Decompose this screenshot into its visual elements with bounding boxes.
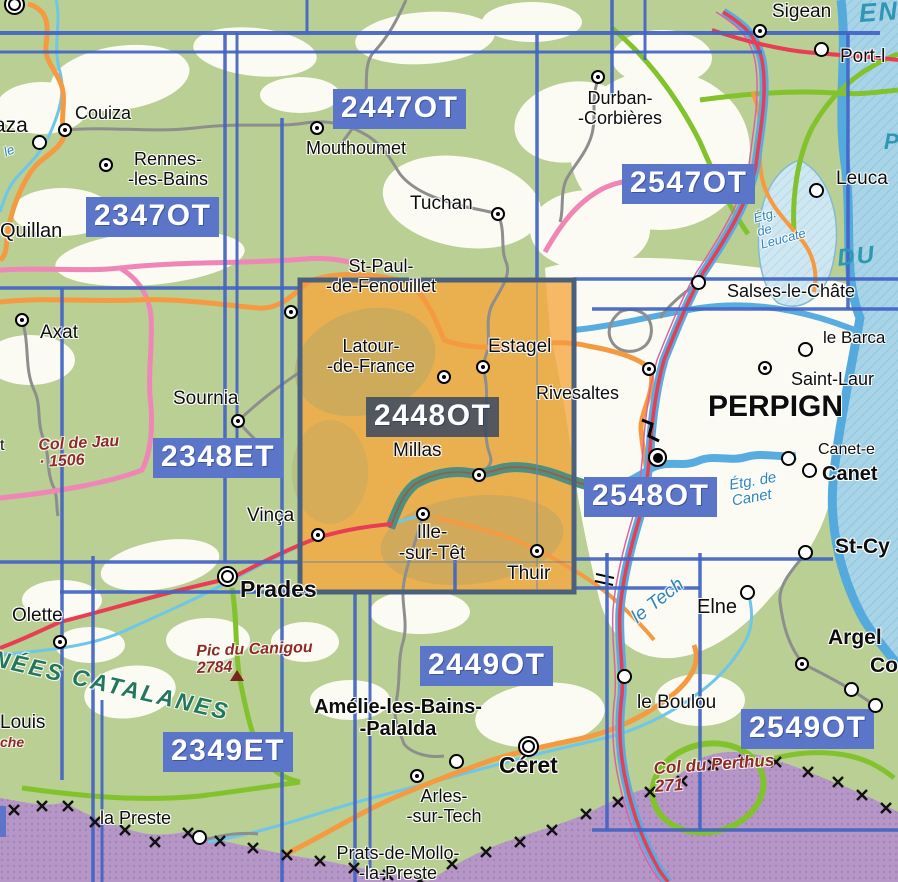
sheet-badge-T[interactable]: T <box>0 806 6 837</box>
town-label-line: St-Paul- <box>326 256 436 276</box>
town-label-line: St-Cy <box>835 535 890 559</box>
town-marker-icon <box>814 42 829 57</box>
town-label-line: Saint-Laur <box>791 369 874 389</box>
town-label-canet: Canet <box>822 463 878 485</box>
town-label-line: Louis <box>0 712 45 733</box>
sheet-badge-2348ET[interactable]: 2348ET <box>153 438 283 478</box>
town-marker-icon <box>491 207 505 221</box>
town-marker-icon <box>410 769 424 783</box>
town-label-line: la Preste <box>100 808 171 828</box>
town-label-canet-e: Canet-e <box>818 441 875 459</box>
town-label-line: Vinça <box>247 505 294 526</box>
town-label-axat: Axat <box>40 322 78 343</box>
town-label-line: Durban- <box>578 88 662 108</box>
town-label-sournia: Sournia <box>173 388 239 409</box>
map-canvas: 2347OT2447OT2547OT2348ET2448OT2548OT2449… <box>0 0 898 882</box>
town-label-thuir: Thuir <box>507 563 550 584</box>
town-label-line: -sur-Têt <box>399 543 466 564</box>
town-label-line: Arles- <box>406 786 481 806</box>
town-label-tuchan: Tuchan <box>410 193 473 214</box>
town-label-line: Salses-le-Châte <box>727 281 855 301</box>
town-marker-icon <box>518 736 539 757</box>
nature-label-col-de-jau: Col de Jau· 1506 <box>38 434 121 472</box>
town-label-line: PERPIGN <box>708 390 843 424</box>
town-label-line: Millas <box>393 440 442 461</box>
town-marker-icon <box>449 754 464 769</box>
town-label-line: aza <box>0 114 28 138</box>
town-label-line: Ille- <box>399 522 466 543</box>
sheet-badge-2549OT[interactable]: 2549OT <box>741 709 874 749</box>
town-label-line: Prats-de-Mollo- <box>336 843 459 863</box>
town-label-line: le Boulou <box>637 692 716 713</box>
town-marker-icon <box>217 566 238 587</box>
town-label-line: Latour- <box>327 336 415 356</box>
nature-label-line: DU <box>836 242 877 271</box>
town-label-line: Canet-e <box>818 441 875 459</box>
town-label-line: Prades <box>240 577 317 603</box>
town-marker-icon <box>192 830 207 845</box>
town-label-la-preste: la Preste <box>100 808 171 828</box>
town-marker-icon <box>753 24 767 38</box>
town-marker-icon <box>798 342 813 357</box>
town-label-saint-laur: Saint-Laur <box>791 369 874 389</box>
town-label-argel: Argel <box>828 626 882 650</box>
nature-label-line: le <box>2 143 16 159</box>
town-marker-icon <box>15 313 29 327</box>
town-label-estagel: Estagel <box>488 336 551 357</box>
town-label-salses-le-ch-te: Salses-le-Châte <box>727 281 855 301</box>
town-marker-icon <box>311 528 325 542</box>
town-label-le-barca: le Barca <box>823 328 885 347</box>
town-marker-icon <box>591 70 605 84</box>
nature-label-pic-du-canigou: Pic du Canigou2784 <box>196 640 314 678</box>
town-label-line: -la-Preste <box>336 863 459 882</box>
town-label-am-lie-les-bains: Amélie-les-Bains--Palalda <box>314 696 482 741</box>
nature-label-le: le <box>2 143 16 159</box>
town-label-leuca: Leuca <box>836 168 888 189</box>
nature-label-line: P <box>884 130 898 153</box>
town-marker-icon <box>809 183 824 198</box>
town-marker-icon <box>472 468 486 482</box>
nature-label-line: 2784 <box>197 657 314 678</box>
sheet-badge-2547OT[interactable]: 2547OT <box>622 164 755 204</box>
town-marker-icon <box>844 682 859 697</box>
town-label-sigean: Sigean <box>772 1 831 22</box>
sheet-badge-2447OT[interactable]: 2447OT <box>333 89 466 129</box>
town-label-olette: Olette <box>12 605 63 626</box>
town-marker-icon <box>310 121 324 135</box>
town-label-line: Axat <box>40 322 78 343</box>
town-marker-icon <box>4 0 25 15</box>
town-marker-icon <box>53 635 67 649</box>
town-label-rivesaltes: Rivesaltes <box>536 383 619 403</box>
nature-label-line: le Tech <box>628 575 688 628</box>
nature-label-col-du-perthus: Col du Perthus271 <box>653 752 776 796</box>
town-marker-icon <box>416 507 430 521</box>
nature-label-che: che <box>0 735 24 750</box>
town-label-durban: Durban--Corbières <box>578 88 662 128</box>
town-label-line: -les-Bains <box>128 169 208 189</box>
town-label-st-paul: St-Paul--de-Fenouillet <box>326 256 436 296</box>
town-marker-icon <box>99 158 113 172</box>
town-label-couiza: Couiza <box>75 103 131 123</box>
town-label-st-cy: St-Cy <box>835 535 890 559</box>
town-label-prades: Prades <box>240 577 317 603</box>
town-marker-icon <box>691 275 706 290</box>
town-label-line: Mouthoumet <box>306 138 406 158</box>
town-marker-icon <box>795 657 809 671</box>
town-label-line: Sournia <box>173 388 239 409</box>
town-marker-icon <box>617 669 632 684</box>
town-label-line: Elne <box>697 596 737 618</box>
town-marker-icon <box>231 414 245 428</box>
peak-icon <box>230 670 244 681</box>
town-marker-icon <box>642 362 656 376</box>
town-label-vin-a: Vinça <box>247 505 294 526</box>
town-label-quillan: Quillan <box>0 220 62 242</box>
town-marker-icon <box>740 585 755 600</box>
town-label-line: Argel <box>828 626 882 650</box>
town-label-elne: Elne <box>697 596 737 618</box>
town-label-line: Port-l <box>840 46 885 67</box>
nature-label-le-tech: le Tech <box>628 575 688 628</box>
town-label-mouthoumet: Mouthoumet <box>306 138 406 158</box>
town-label-co: Co <box>870 654 898 678</box>
town-label-ille: Ille--sur-Têt <box>399 522 466 565</box>
nature-label-du: DU <box>836 242 877 271</box>
nature-label-line: EN <box>858 0 898 27</box>
sheet-badge-2449OT[interactable]: 2449OT <box>420 646 553 686</box>
town-label-line: Estagel <box>488 336 551 357</box>
town-marker-icon <box>648 448 667 467</box>
town-label-line: -Corbières <box>578 108 662 128</box>
town-marker-icon <box>868 698 883 713</box>
town-label-line: -de-France <box>327 356 415 376</box>
town-marker-icon <box>32 135 47 150</box>
town-marker-icon <box>437 370 451 384</box>
town-label-prats-de-mollo: Prats-de-Mollo--la-Preste <box>336 843 459 882</box>
town-label-line: Co <box>870 654 898 678</box>
town-label-line: Sigean <box>772 1 831 22</box>
town-label-line: Amélie-les-Bains- <box>314 696 482 718</box>
town-label-line: Rivesaltes <box>536 383 619 403</box>
town-label-line: -Palalda <box>314 718 482 740</box>
town-label-line: Canet <box>822 463 878 485</box>
town-label-le-boulou: le Boulou <box>637 692 716 713</box>
town-label-millas: Millas <box>393 440 442 461</box>
map-labels: 2347OT2447OT2547OT2348ET2448OT2548OT2449… <box>0 0 898 882</box>
town-label-line: -sur-Tech <box>406 806 481 826</box>
town-label-latour: Latour--de-France <box>327 336 415 376</box>
town-marker-icon <box>284 305 298 319</box>
nature-label-en: EN <box>858 0 898 27</box>
town-label-arles: Arles--sur-Tech <box>406 786 481 826</box>
town-label-line: Quillan <box>0 220 62 242</box>
nature-label-p: P <box>884 130 898 153</box>
town-marker-icon <box>758 361 772 375</box>
town-label-aza: aza <box>0 114 28 138</box>
town-label-line: Olette <box>12 605 63 626</box>
town-label-line: Couiza <box>75 103 131 123</box>
town-label-line: -de-Fenouillet <box>326 276 436 296</box>
sheet-badge-2347OT[interactable]: 2347OT <box>86 197 219 237</box>
nature-label-tg: Étg.deLeucate <box>752 200 807 252</box>
sheet-badge-2448OT[interactable]: 2448OT <box>366 397 499 437</box>
sheet-badge-2349ET[interactable]: 2349ET <box>163 732 293 772</box>
town-label-line: Leuca <box>836 168 888 189</box>
town-marker-icon <box>781 451 796 466</box>
town-label-perpign: PERPIGN <box>708 390 843 424</box>
sheet-badge-2548OT[interactable]: 2548OT <box>584 477 717 517</box>
town-marker-icon <box>802 463 817 478</box>
town-marker-icon <box>476 360 490 374</box>
town-label-line: Tuchan <box>410 193 473 214</box>
town-label-louis: Louis <box>0 712 45 733</box>
town-label-rennes: Rennes--les-Bains <box>128 149 208 189</box>
town-label-t: t <box>0 437 4 455</box>
town-label-port-l: Port-l <box>840 46 885 67</box>
town-marker-icon <box>58 123 72 137</box>
nature-label-line: · 1506 <box>39 451 121 472</box>
nature-label-tg-de: Étg. deCanet <box>728 470 780 509</box>
town-label-line: Rennes- <box>128 149 208 169</box>
town-label-line: le Barca <box>823 328 885 347</box>
town-marker-icon <box>530 544 544 558</box>
nature-label-line: che <box>0 735 24 750</box>
town-label-line: Thuir <box>507 563 550 584</box>
town-label-line: t <box>0 437 4 455</box>
town-marker-icon <box>798 545 813 560</box>
